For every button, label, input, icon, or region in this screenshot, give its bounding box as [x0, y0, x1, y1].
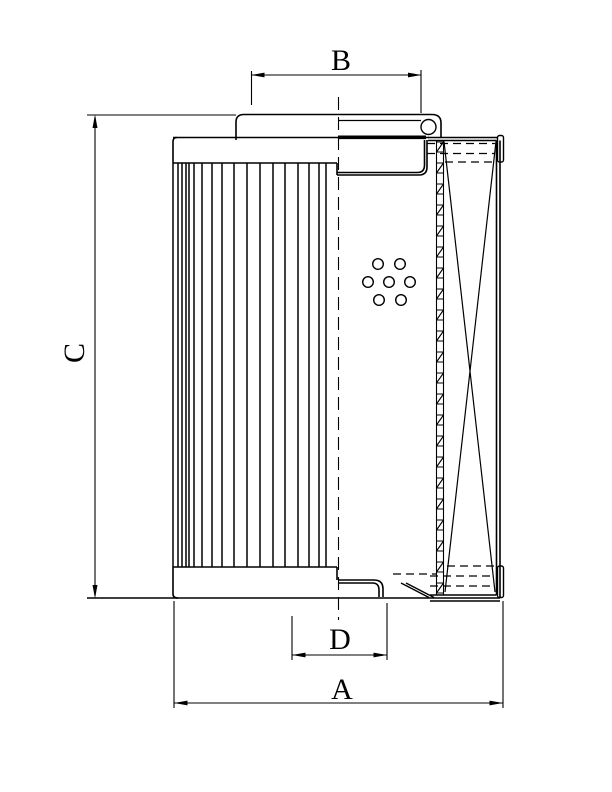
filter-element-drawing: C B D A [0, 0, 612, 792]
arrow-A-left [174, 701, 188, 706]
label-C: C [58, 343, 91, 363]
hole [374, 295, 385, 306]
pleated-media [173, 163, 326, 567]
bottom-transition [401, 583, 434, 598]
arrow-D-right [374, 653, 388, 658]
media-section-hatch [437, 141, 444, 596]
hole [373, 259, 384, 270]
hole [405, 277, 416, 288]
bottom-cap-left-edge [173, 567, 178, 598]
arrow-D-left [292, 653, 306, 658]
arrow-A-right [490, 701, 504, 706]
label-D: D [329, 623, 351, 656]
arrow-C-down [93, 585, 98, 599]
spigot-inner [338, 583, 379, 597]
hole [395, 259, 406, 270]
hidden-lines-top [427, 144, 495, 163]
label-B: B [331, 44, 351, 77]
label-A: A [331, 673, 353, 706]
top-cap-rim-outer [337, 140, 427, 175]
cross-brace [444, 142, 496, 593]
core-holes [363, 259, 416, 306]
arrow-B-left [251, 73, 265, 78]
arrow-C-up [93, 115, 98, 129]
hole [363, 277, 374, 288]
drawing-page: C B D A [0, 0, 612, 792]
end-cap-bottom [173, 567, 434, 598]
arrow-B-right [408, 73, 422, 78]
hole [396, 295, 407, 306]
hatch-squares [437, 142, 444, 593]
o-ring [421, 120, 436, 135]
dimension-height-C [87, 115, 236, 596]
top-cap-rim-inner [337, 140, 425, 173]
top-cap-left-edge [173, 138, 177, 164]
hole [384, 277, 395, 288]
